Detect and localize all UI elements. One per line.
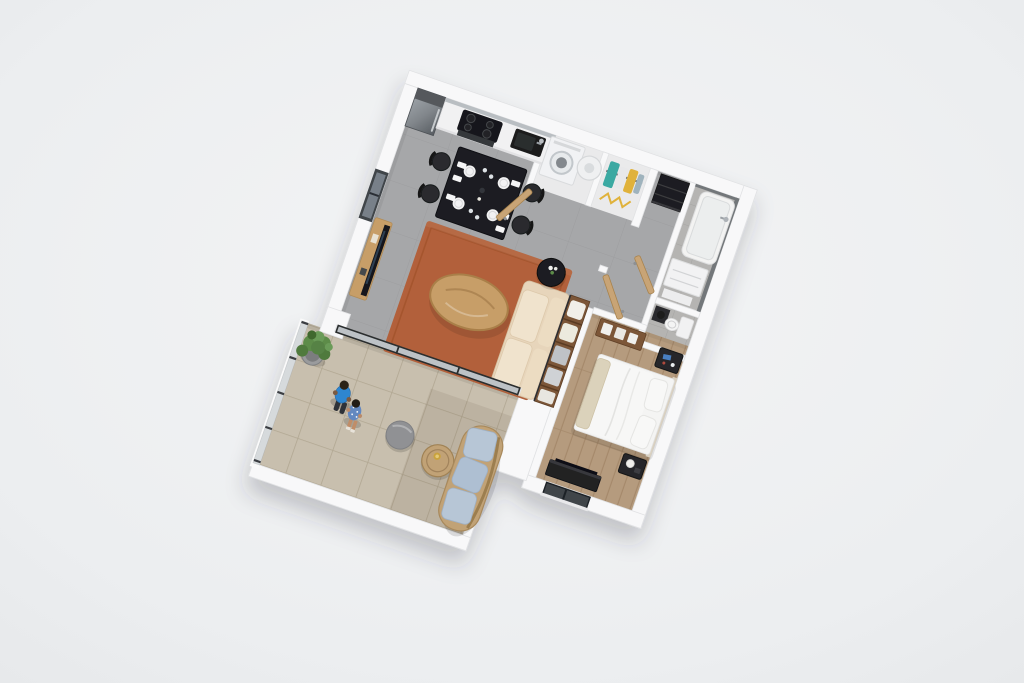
- floor-plan-render: [0, 0, 1024, 683]
- rattan-cushion: [462, 427, 498, 463]
- floor-plan-stage: [0, 0, 1024, 683]
